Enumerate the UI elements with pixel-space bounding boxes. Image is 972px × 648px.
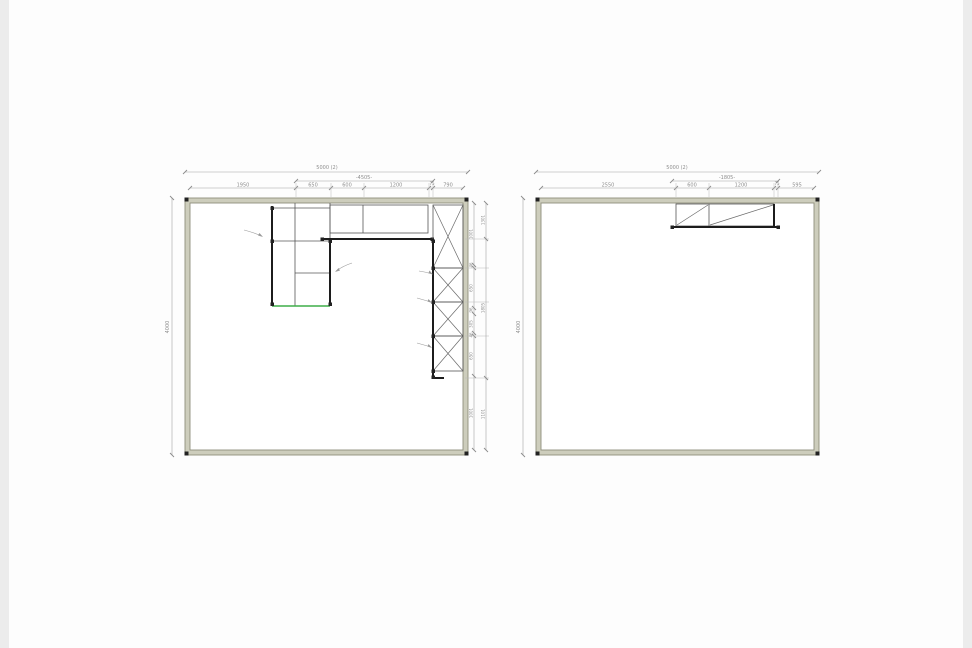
dim-left-ro-1: 1805 (481, 302, 486, 313)
dim-left-seg-2: 600 (342, 183, 352, 189)
dim-left-ro-0: 1301 (481, 214, 486, 225)
dim-right-total: 5000 (2) (666, 165, 687, 171)
dim-left-ro-2: 1101 (481, 408, 486, 419)
dim-right-seg-3: 75 (774, 181, 780, 186)
left-right-outer-dimension: 1301 1805 1101 (481, 201, 489, 452)
drawing-sheet: 5000 (2) -4505- 1950 650 (0, 0, 972, 648)
dim-left-ri-7: 1001 (469, 407, 474, 418)
right-top-dimensions: 5000 (2) -1805- 2550 600 1200 75 (534, 165, 821, 197)
dim-left-height: 4000 (165, 321, 171, 334)
dim-right-seg-0: 2550 (602, 183, 615, 189)
left-height-dimension: 4000 (165, 196, 174, 457)
dim-left-ri-3: 96 (469, 307, 474, 313)
dim-left-seg-4: 75 (429, 181, 435, 186)
dim-right-height: 4000 (516, 321, 522, 334)
dim-left-ri-1: 46 (469, 262, 474, 268)
dim-left-seg-5: 790 (443, 183, 453, 189)
right-elevation-panel: 5000 (2) -1805- 2550 600 1200 75 (516, 165, 821, 457)
dim-left-ri-6: 650 (469, 352, 474, 360)
right-room-walls (536, 198, 820, 456)
dim-left-seg-3: 1200 (390, 183, 403, 189)
left-room-walls (185, 198, 469, 456)
dim-left-run: -4505- (356, 175, 373, 181)
dim-right-seg-1: 600 (687, 183, 697, 189)
dim-left-total: 5000 (2) (316, 165, 337, 171)
dim-left-ri-2: 650 (469, 284, 474, 292)
dim-left-seg-0: 1950 (237, 183, 250, 189)
dim-left-ri-4: 305 (469, 320, 474, 328)
dim-right-run: -1805- (719, 175, 736, 181)
cad-drawing: 5000 (2) -4505- 1950 650 (0, 0, 972, 648)
left-top-dimensions: 5000 (2) -4505- 1950 650 (183, 165, 470, 197)
left-elevation-panel: 5000 (2) -4505- 1950 650 (165, 165, 489, 457)
right-height-dimension: 4000 (516, 196, 525, 457)
dim-left-ri-5: 46 (469, 332, 474, 338)
dim-left-seg-1: 650 (308, 183, 318, 189)
dim-right-seg-4: 595 (792, 183, 802, 189)
dim-left-ri-0: 1001 (469, 228, 474, 239)
dim-right-seg-2: 1200 (735, 183, 748, 189)
